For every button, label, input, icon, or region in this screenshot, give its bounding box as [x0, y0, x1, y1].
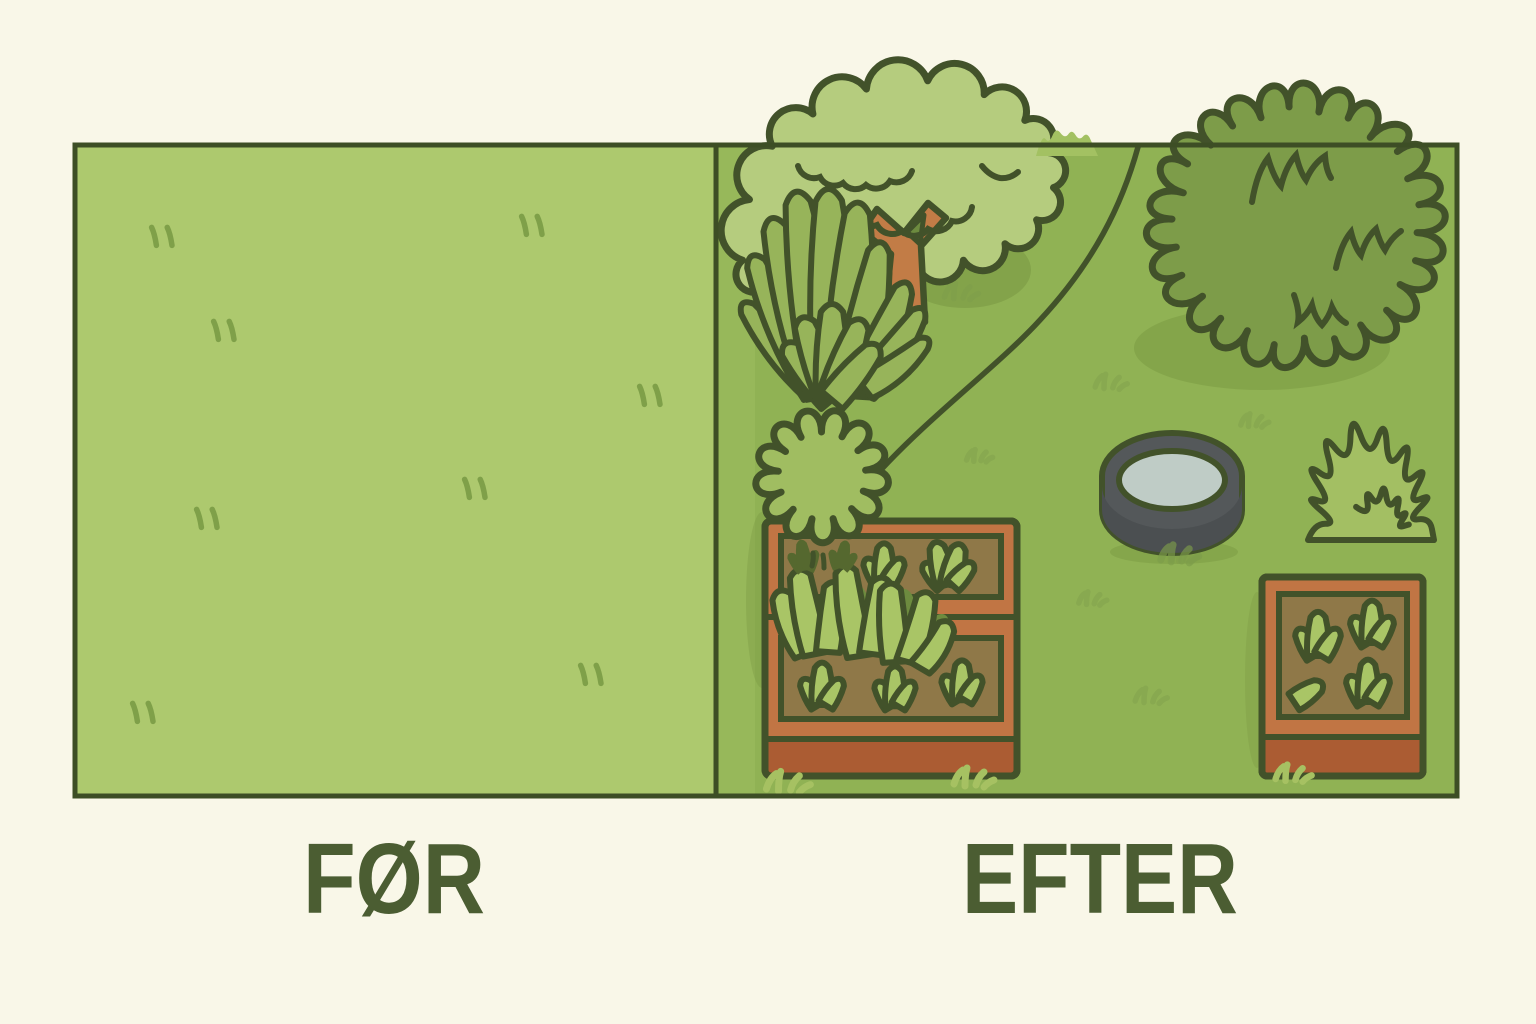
svg-text:EFTER: EFTER: [962, 823, 1238, 935]
svg-text:FØR: FØR: [303, 823, 485, 935]
